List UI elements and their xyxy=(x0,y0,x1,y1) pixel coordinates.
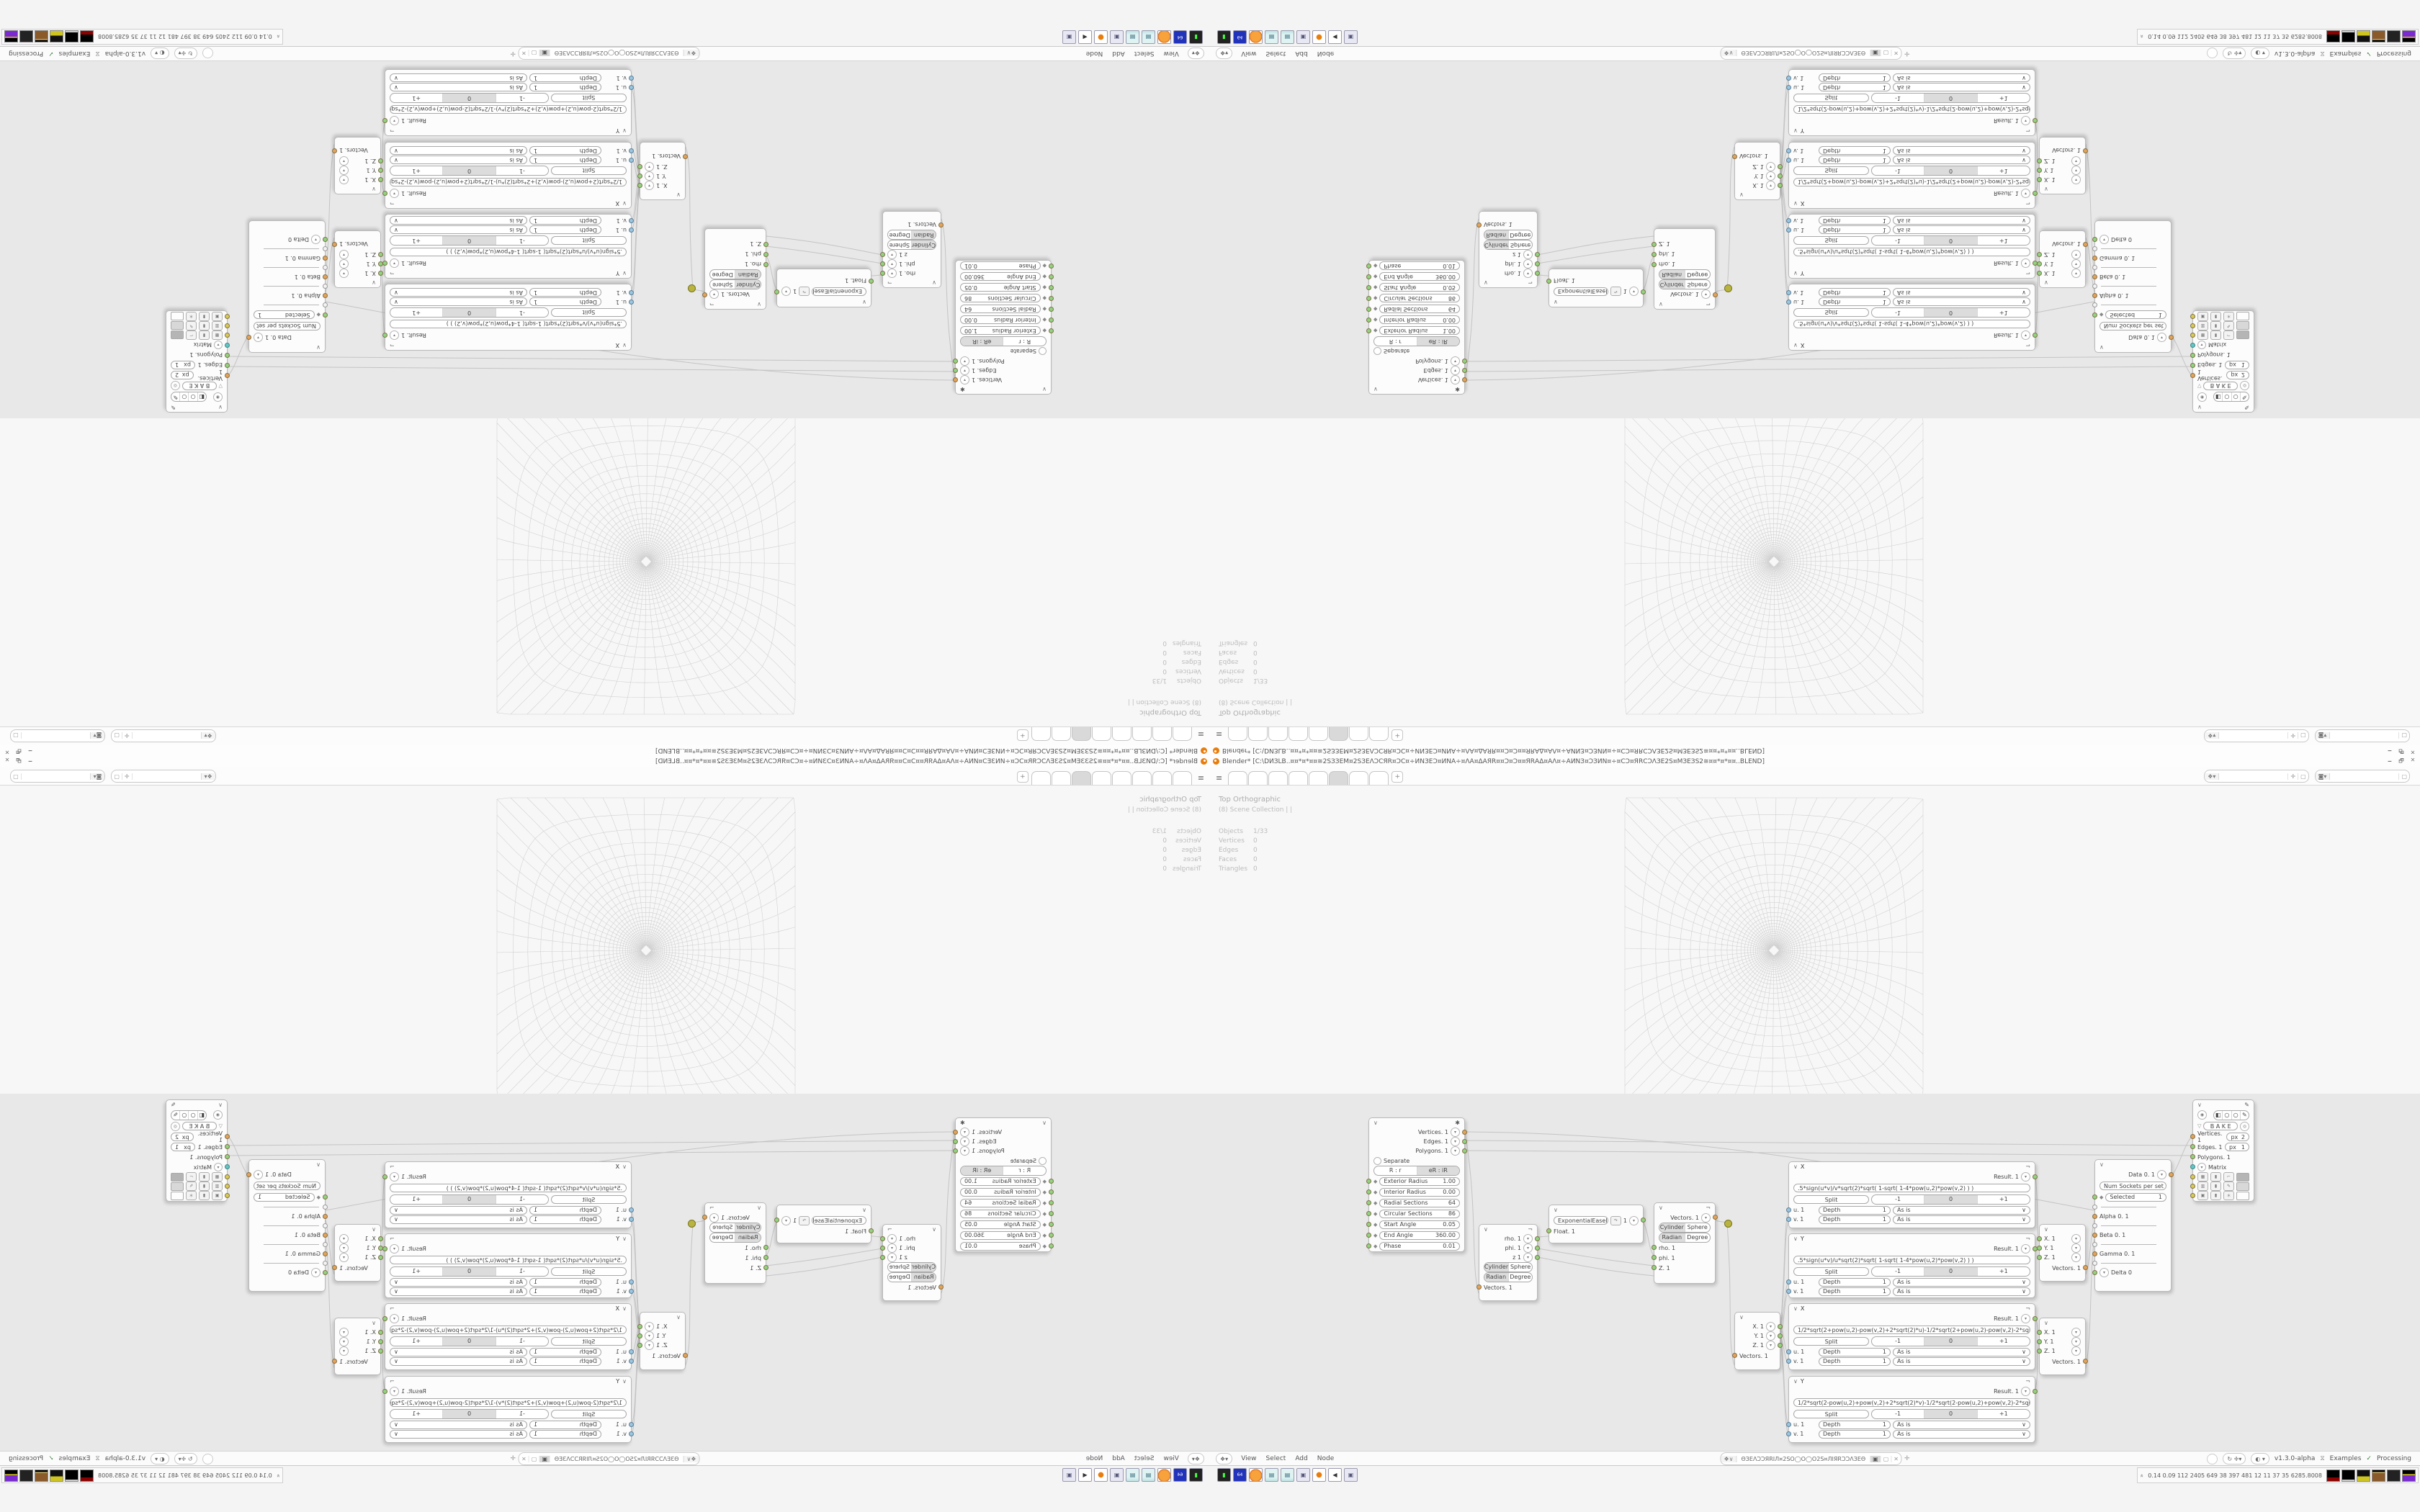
node-tree-selector[interactable]: ❖∨ ΘЗЕΛƆƆЯRIЛ¤2SO◯O◯O2S¤ЛIЯRƆƆΛЗЕΘ ▣ ▢ ✕ xyxy=(519,47,700,60)
socket-result-out[interactable] xyxy=(382,1389,387,1394)
node-easing[interactable]: ∨ ExponentialEaseIn ∨↷1▾ Float. 1 xyxy=(1549,1205,1644,1243)
angle-unit-toggle[interactable]: RadianDegree xyxy=(709,269,761,279)
node-vector-polar-output[interactable]: ∨¬ rho. 1▾ phi. 1▾ z 1▾ CylinderSphere R… xyxy=(1479,1224,1538,1301)
workspace-tab-active[interactable] xyxy=(1072,727,1091,741)
field-phase[interactable]: Phase0.01 xyxy=(960,262,1041,271)
node-vector-polar-input[interactable]: ∨¬ Vectors. 1▾ CylinderSphere RadianDegr… xyxy=(704,228,766,310)
reroute-node[interactable] xyxy=(1724,1220,1732,1228)
minimize-button[interactable]: 🗕 xyxy=(27,757,34,767)
node-vector-in-2[interactable]: ∨ X. 1▾ Y. 1▾ Z. 1▾ Vectors. 1 xyxy=(334,1318,381,1375)
node-vector-in-1[interactable]: ∨ X. 1▾ Y. 1▾ Z. 1▾ Vectors. 1 xyxy=(334,1224,381,1282)
pencil-icon[interactable]: ✎ xyxy=(171,1102,176,1108)
menu-hamburger-icon[interactable]: ≡ xyxy=(1198,773,1204,783)
formula-field[interactable]: .5*sign(u*v)/u*sqrt(2)*sqrt( 1-sqrt( 1-4… xyxy=(390,248,627,256)
socket-polygons-in[interactable] xyxy=(2190,353,2195,358)
blender-icon[interactable]: ● xyxy=(1312,30,1326,44)
split-button[interactable]: Split xyxy=(551,236,627,245)
collapse-icon[interactable]: » xyxy=(275,35,282,39)
processing-toggle[interactable]: Processing xyxy=(9,50,43,57)
socket-phi-in[interactable] xyxy=(763,1255,768,1260)
wrench-icon[interactable]: ¬ xyxy=(390,1164,395,1170)
num-sockets-field[interactable]: Num Sockets per set1 xyxy=(2099,1182,2166,1190)
wrap-toggle[interactable]: -10+1 xyxy=(1871,1266,2030,1277)
wrap-toggle[interactable]: -10+1 xyxy=(390,1409,549,1419)
coords-toggle[interactable]: CylinderSphere xyxy=(1484,1262,1533,1272)
window-icon[interactable]: ▣ xyxy=(1110,30,1124,44)
menu-hamburger-icon[interactable]: ≡ xyxy=(1198,729,1204,739)
socket-u-in[interactable] xyxy=(629,1207,634,1212)
socket-vectors-out[interactable] xyxy=(332,242,337,247)
node-input-switch[interactable]: ∨ Data 0. 1▾ Num Sockets per set1 ◆Selec… xyxy=(2094,220,2172,353)
viewlayer-selector[interactable]: ◙▾ ▢ xyxy=(10,770,105,783)
socket-alpha-in[interactable] xyxy=(2092,1214,2097,1219)
split-button[interactable]: Split xyxy=(1793,1267,1869,1276)
examples-menu[interactable]: Examples xyxy=(2330,1455,2362,1462)
socket-x-in[interactable] xyxy=(378,1330,383,1335)
socket-z-out[interactable] xyxy=(880,253,885,258)
node-ring-generator[interactable]: ∨✱ Vertices. 1▾ Edges. 1▾ Polygons. 1▾ S… xyxy=(1368,260,1465,395)
socket-result-out[interactable] xyxy=(2033,1389,2038,1394)
node-input-switch[interactable]: ∨ Data 0. 1▾ Num Sockets per set1 ◆Selec… xyxy=(248,220,326,353)
angle-unit-toggle[interactable]: RadianDegree xyxy=(1484,1272,1533,1282)
socket-edges-in[interactable] xyxy=(225,363,230,368)
menu-view[interactable]: View xyxy=(1163,50,1178,57)
pencil-icon[interactable]: ✎ xyxy=(2244,404,2249,410)
viewlayer-selector[interactable]: ◙▾ ▢ xyxy=(2315,770,2410,783)
gear-icon[interactable]: ✱ xyxy=(1455,386,1460,392)
workspace-tab[interactable] xyxy=(1112,771,1131,785)
window-icon[interactable]: ▣ xyxy=(1296,1468,1310,1482)
socket-vertices-out[interactable] xyxy=(953,378,958,383)
scene-selector[interactable]: ❖▾ ✛ ▢ xyxy=(2204,770,2308,783)
workspace-tab[interactable] xyxy=(1132,771,1152,785)
socket-u-in[interactable] xyxy=(1786,1349,1791,1354)
add-workspace-button[interactable]: + xyxy=(1391,771,1403,783)
processing-toggle[interactable]: Processing xyxy=(2377,1455,2411,1462)
node-input-switch[interactable]: ∨ Data 0. 1▾ Num Sockets per set1 ◆Selec… xyxy=(248,1159,326,1292)
poly-color-swatch[interactable] xyxy=(171,1192,184,1200)
socket-edges-out[interactable] xyxy=(953,1139,958,1144)
wrap-toggle[interactable]: -10+1 xyxy=(1871,235,2030,246)
wrap-toggle[interactable]: -10+1 xyxy=(1871,1336,2030,1346)
easing-function-dropdown[interactable]: ExponentialEaseIn ∨ xyxy=(812,287,866,296)
socket-x-out[interactable] xyxy=(637,184,642,189)
node-editor[interactable]: ∨✱ Vertices. 1▾ Edges. 1▾ Polygons. 1▾ S… xyxy=(0,1094,1210,1451)
node-formula-y2[interactable]: ∨Y¬ Result. 1▾ 1/2*sqrt(2-pow(u,2)+pow(v… xyxy=(385,1376,632,1443)
socket-x-in[interactable] xyxy=(2037,1236,2042,1241)
notepad-icon[interactable]: ▤ xyxy=(1126,1468,1139,1482)
field-radial-sections[interactable]: Radial Sections64 xyxy=(1379,1199,1460,1207)
socket-z-in[interactable] xyxy=(2037,159,2042,164)
copy-icon[interactable]: ▢ xyxy=(1881,50,1891,57)
pin-icon[interactable]: ✛ xyxy=(2287,733,2298,739)
socket-vectors-out[interactable] xyxy=(332,1265,337,1270)
split-button[interactable]: Split xyxy=(1793,166,1869,175)
draw-mode-icons[interactable]: ◧○○✎ xyxy=(171,392,207,402)
copy-icon[interactable]: ▢ xyxy=(11,733,22,739)
formula-field[interactable]: 1/2*sqrt(2-pow(u,2)+pow(v,2)+2*sqrt(2)*v… xyxy=(390,1398,627,1407)
coords-toggle[interactable]: CylinderSphere xyxy=(887,240,936,250)
maximize-button[interactable]: 🗗 xyxy=(2398,757,2405,767)
viewport-3d[interactable]: Top Orthographic (8) Scene Collection | … xyxy=(0,786,1210,1108)
viewport-3d[interactable]: Top Orthographic (8) Scene Collection | … xyxy=(1210,404,2420,726)
copy-icon[interactable]: ▢ xyxy=(2298,733,2308,739)
socket-result-out[interactable] xyxy=(382,261,387,266)
socket-empty[interactable] xyxy=(2092,1205,2097,1210)
menu-hamburger-icon[interactable]: ≡ xyxy=(1216,729,1222,739)
node-vector-in-2[interactable]: ∨ X. 1▾ Y. 1▾ Z. 1▾ Vectors. 1 xyxy=(334,137,381,194)
menu-add[interactable]: Add xyxy=(1295,1455,1307,1462)
socket-empty[interactable] xyxy=(323,1205,328,1210)
field-interior-radius[interactable]: Interior Radius0.00 xyxy=(960,316,1041,325)
socket-edge-color[interactable] xyxy=(2190,324,2195,329)
wrench-icon[interactable]: ¬ xyxy=(390,342,395,348)
firefox-icon[interactable] xyxy=(1249,30,1263,44)
menu-select[interactable]: Select xyxy=(1266,50,1286,57)
socket-z-out[interactable] xyxy=(637,1343,642,1348)
socket-empty[interactable] xyxy=(2092,266,2097,271)
field-end-angle[interactable]: End Angle360.00 xyxy=(960,273,1041,282)
edge-width-field[interactable]: px1 xyxy=(171,361,195,369)
close-button[interactable]: ✕ xyxy=(2409,746,2416,756)
socket-z-in[interactable] xyxy=(1652,242,1657,247)
node-tree-selector[interactable]: ❖∨ ΘЗЕΛƆƆЯRIЛ¤2SO◯O◯O2S¤ЛIЯRƆƆΛЗЕΘ ▣ ▢ ✕ xyxy=(519,1452,700,1465)
socket-edge-color[interactable] xyxy=(225,1184,230,1189)
draw-mode-icons[interactable]: ◧○○✎ xyxy=(2213,1110,2249,1120)
copy-icon[interactable]: ▢ xyxy=(529,50,540,57)
wrap-toggle[interactable]: -10+1 xyxy=(1871,1194,2030,1205)
socket-vectors-in[interactable] xyxy=(683,1353,688,1358)
socket-rho-in[interactable] xyxy=(763,262,768,267)
display-toggle-icon[interactable]: ◉ xyxy=(213,392,223,402)
formula-field[interactable]: .5*sign(u*v)/v*sqrt(2)*sqrt( 1-sqrt( 1-4… xyxy=(1793,320,2030,328)
viewport-3d[interactable]: Top Orthographic (8) Scene Collection | … xyxy=(0,404,1210,726)
socket-z-in[interactable] xyxy=(2037,1349,2042,1354)
point-size-field[interactable]: px2 xyxy=(2226,1133,2249,1141)
workspace-tab[interactable] xyxy=(1268,771,1288,785)
wrap-toggle[interactable]: -10+1 xyxy=(390,1266,549,1277)
menu-view[interactable]: View xyxy=(1241,1455,1256,1462)
formula-field[interactable]: .5*sign(u*v)/u*sqrt(2)*sqrt( 1-sqrt( 1-4… xyxy=(1793,1256,2030,1264)
formula-field[interactable]: 1/2*sqrt(2-pow(u,2)+pow(v,2)+2*sqrt(2)*v… xyxy=(390,105,627,114)
socket-alpha-in[interactable] xyxy=(323,1214,328,1219)
socket-poly-color[interactable] xyxy=(225,1193,230,1198)
socket-phi-out[interactable] xyxy=(1535,1246,1540,1251)
bake-options-icon[interactable]: ▽ xyxy=(219,1123,223,1129)
separate-checkbox[interactable] xyxy=(1373,1157,1381,1165)
field-interior-radius[interactable]: Interior Radius0.00 xyxy=(960,1188,1041,1197)
wrench-icon[interactable]: ¬ xyxy=(2025,1305,2030,1312)
copy-icon[interactable]: ▢ xyxy=(112,773,122,780)
workspace-tab[interactable] xyxy=(1228,727,1247,741)
socket-u-in[interactable] xyxy=(629,1279,634,1284)
vertex-color-swatch[interactable] xyxy=(171,331,184,340)
socket-easing-out[interactable] xyxy=(1641,1218,1646,1223)
maximize-button[interactable]: 🗗 xyxy=(15,746,22,756)
light-icon[interactable]: ◎ xyxy=(171,1122,180,1131)
node-ring-generator[interactable]: ∨✱ Vertices. 1▾ Edges. 1▾ Polygons. 1▾ S… xyxy=(955,260,1052,395)
socket-data-out[interactable] xyxy=(246,1172,251,1177)
socket-vectors-in[interactable] xyxy=(1476,1284,1482,1290)
vertex-color-swatch[interactable] xyxy=(171,1173,184,1182)
socket-z-in[interactable] xyxy=(2037,1255,2042,1260)
field-start-angle[interactable]: Start Angle0.05 xyxy=(960,284,1041,292)
menu-node[interactable]: Node xyxy=(1317,50,1335,57)
menu-node[interactable]: Node xyxy=(1086,1455,1103,1462)
ring-mode-toggle[interactable]: R : reR : iR xyxy=(1373,1166,1460,1176)
socket-v-in[interactable] xyxy=(1786,219,1791,224)
socket-y-in[interactable] xyxy=(378,1246,383,1251)
workspace-tab[interactable] xyxy=(1309,771,1328,785)
selected-field[interactable]: Selected1 xyxy=(2105,1193,2166,1202)
node-vector-in-2[interactable]: ∨ X. 1▾ Y. 1▾ Z. 1▾ Vectors. 1 xyxy=(2039,1318,2086,1375)
socket-u-in[interactable] xyxy=(1786,158,1791,163)
socket-y-out[interactable] xyxy=(1778,1333,1783,1338)
poly-color-swatch[interactable] xyxy=(171,312,184,321)
easing-curve-icon[interactable]: ↷ xyxy=(1610,287,1621,297)
edge-width-field[interactable]: px1 xyxy=(2225,361,2249,369)
workspace-tab[interactable] xyxy=(1289,727,1308,741)
formula-field[interactable]: 1/2*sqrt(2-pow(u,2)+pow(v,2)+2*sqrt(2)*v… xyxy=(1793,105,2030,114)
menu-select[interactable]: Select xyxy=(1134,1455,1155,1462)
collapse-icon[interactable]: » xyxy=(2138,1474,2145,1477)
socket-easing-out[interactable] xyxy=(774,289,779,294)
value-options-icon[interactable]: ◆ xyxy=(1373,328,1377,334)
display-toggle-icon[interactable]: ◉ xyxy=(2197,1110,2207,1120)
field-end-angle[interactable]: End Angle360.00 xyxy=(960,1231,1041,1240)
node-vector-polar-input[interactable]: ∨¬ Vectors. 1▾ CylinderSphere RadianDegr… xyxy=(1654,228,1716,310)
socket-vertices-in[interactable] xyxy=(225,373,230,378)
menu-select[interactable]: Select xyxy=(1266,1455,1286,1462)
scene-name-well[interactable] xyxy=(2219,770,2287,782)
node-tree-selector[interactable]: ❖∨ ΘЗЕΛƆƆЯRIЛ¤2SO◯O◯O2S¤ЛIЯRƆƆΛЗЕΘ ▣ ▢ ✕ xyxy=(1720,47,1901,60)
wrench-icon[interactable]: ¬ xyxy=(390,270,395,276)
field-circular-sections[interactable]: Circular Sections86 xyxy=(1379,294,1460,303)
shading-icon[interactable]: ◐ ▾ xyxy=(2251,48,2269,59)
socket-rho-out[interactable] xyxy=(880,1236,885,1241)
field-circular-sections[interactable]: Circular Sections86 xyxy=(1379,1210,1460,1218)
field-interior-radius[interactable]: Interior Radius0.00 xyxy=(1379,316,1460,325)
pin-icon[interactable]: ✛ xyxy=(122,773,133,780)
formula-field[interactable]: .5*sign(u*v)/v*sqrt(2)*sqrt( 1-sqrt( 1-4… xyxy=(390,1184,627,1192)
blender-icon[interactable]: ● xyxy=(1312,1468,1326,1482)
examples-menu[interactable]: Examples xyxy=(2330,50,2362,57)
node-formula-x1[interactable]: ∨X¬ Result. 1▾ .5*sign(u*v)/v*sqrt(2)*sq… xyxy=(1788,284,2035,351)
easing-function-dropdown[interactable]: ExponentialEaseIn ∨ xyxy=(1554,1216,1608,1225)
wrench-icon[interactable]: ¬ xyxy=(390,1378,395,1385)
copy-icon[interactable]: ▢ xyxy=(2298,773,2308,780)
socket-vectors-in[interactable] xyxy=(1732,1353,1737,1358)
copy-icon[interactable]: ▢ xyxy=(1881,1456,1891,1462)
maximize-button[interactable]: 🗗 xyxy=(15,757,22,767)
bake-options-icon[interactable]: ▽ xyxy=(2197,1123,2201,1129)
socket-x-in[interactable] xyxy=(2037,271,2042,276)
num-sockets-field[interactable]: Num Sockets per set1 xyxy=(2099,322,2166,330)
socket-result-out[interactable] xyxy=(382,192,387,197)
socket-vert-color[interactable] xyxy=(2190,1174,2195,1179)
socket-z-in[interactable] xyxy=(2037,253,2042,258)
workspace-tab-active[interactable] xyxy=(1329,771,1348,785)
draw-mode-icons[interactable]: ◧○○✎ xyxy=(171,1110,207,1120)
split-button[interactable]: Split xyxy=(1793,1410,1869,1418)
wrap-toggle[interactable]: -10+1 xyxy=(1871,1409,2030,1419)
wrench-icon[interactable]: ¬ xyxy=(887,1226,892,1233)
floppy-64-icon[interactable]: 64 xyxy=(1233,30,1247,44)
node-viewer-draw[interactable]: ∨✎ ◉◧○○✎ ▽B A K E◎ Vertices. 1px2 Edges.… xyxy=(166,310,228,413)
socket-v-in[interactable] xyxy=(1786,1359,1791,1364)
node-vector-in-1[interactable]: ∨ X. 1▾ Y. 1▾ Z. 1▾ Vectors. 1 xyxy=(334,230,381,288)
window-icon[interactable]: ▣ xyxy=(1296,30,1310,44)
ring-mode-toggle[interactable]: R : reR : iR xyxy=(960,336,1047,346)
reroute-node[interactable] xyxy=(1724,284,1732,292)
node-formula-y2[interactable]: ∨Y¬ Result. 1▾ 1/2*sqrt(2-pow(u,2)+pow(v… xyxy=(1788,1376,2035,1443)
socket-float-in[interactable] xyxy=(1546,1228,1551,1233)
socket-z-in[interactable] xyxy=(378,1349,383,1354)
socket-vectors-out[interactable] xyxy=(2083,1265,2088,1270)
workspace-tab[interactable] xyxy=(1112,727,1131,741)
socket-z-out[interactable] xyxy=(637,165,642,170)
split-button[interactable]: Split xyxy=(551,1267,627,1276)
workspace-tab-active[interactable] xyxy=(1072,771,1091,785)
field-radial-sections[interactable]: Radial Sections64 xyxy=(960,1199,1041,1207)
socket-polygons-out[interactable] xyxy=(953,359,958,364)
socket-phi-out[interactable] xyxy=(880,262,885,267)
split-button[interactable]: Split xyxy=(1793,94,1869,102)
blank-circle-icon[interactable] xyxy=(2207,1454,2218,1464)
value-options-icon[interactable]: ◆ xyxy=(1043,1179,1047,1184)
shading-icon[interactable]: ◐ ▾ xyxy=(151,1453,169,1464)
socket-float-in[interactable] xyxy=(1546,279,1551,284)
pin-icon[interactable]: ✛ xyxy=(1904,1455,1910,1462)
angle-unit-toggle[interactable]: RadianDegree xyxy=(887,1272,936,1282)
socket-vectors-in[interactable] xyxy=(683,154,688,159)
coords-toggle[interactable]: CylinderSphere xyxy=(1659,1223,1711,1233)
floppy-64-icon[interactable]: 64 xyxy=(1233,1468,1247,1482)
blank-circle-icon[interactable] xyxy=(202,48,213,59)
workspace-tab[interactable] xyxy=(1052,771,1071,785)
node-vector-in-1[interactable]: ∨ X. 1▾ Y. 1▾ Z. 1▾ Vectors. 1 xyxy=(2039,230,2086,288)
audio-icon[interactable]: ◀ xyxy=(1078,1468,1092,1482)
node-vector-polar-input[interactable]: ∨¬ Vectors. 1▾ CylinderSphere RadianDegr… xyxy=(704,1202,766,1284)
socket-edges-in[interactable] xyxy=(2190,363,2195,368)
field-exterior-radius[interactable]: Exterior Radius1.00 xyxy=(960,1177,1041,1186)
socket-empty[interactable] xyxy=(2092,303,2097,308)
field-interior-radius[interactable]: Interior Radius0.00 xyxy=(1379,1188,1460,1197)
socket-poly-color[interactable] xyxy=(2190,315,2195,320)
workspace-tab[interactable] xyxy=(1152,771,1172,785)
copy-icon[interactable]: ▢ xyxy=(2398,773,2409,780)
socket-gamma-in[interactable] xyxy=(2092,1251,2097,1256)
node-formula-x2[interactable]: ∨X¬ Result. 1▾ 1/2*sqrt(2+pow(u,2)-pow(v… xyxy=(1788,1303,2035,1370)
viewlayer-selector[interactable]: ◙▾ ▢ xyxy=(10,729,105,742)
display-toggle-icon[interactable]: ◉ xyxy=(213,1110,223,1120)
socket-matrix-in[interactable] xyxy=(2190,1164,2195,1169)
coords-toggle[interactable]: CylinderSphere xyxy=(709,279,761,289)
socket-u-in[interactable] xyxy=(1786,300,1791,305)
gear-icon[interactable]: ✱ xyxy=(1455,1120,1460,1126)
socket-rho-in[interactable] xyxy=(1652,262,1657,267)
update-group-icons[interactable]: ↻ ✛▾ xyxy=(174,1453,197,1464)
socket-vectors-out[interactable] xyxy=(332,1359,337,1364)
field-phase[interactable]: Phase0.01 xyxy=(1379,1242,1460,1251)
value-options-icon[interactable]: ◆ xyxy=(1043,328,1047,334)
node-ring-generator[interactable]: ∨✱ Vertices. 1▾ Edges. 1▾ Polygons. 1▾ S… xyxy=(1368,1117,1465,1252)
node-viewer-draw[interactable]: ∨✎ ◉◧○○✎ ▽B A K E◎ Vertices. 1px2 Edges.… xyxy=(166,1099,228,1202)
node-viewer-draw[interactable]: ∨✎ ◉◧○○✎ ▽B A K E◎ Vertices. 1px2 Edges.… xyxy=(2192,1099,2254,1202)
socket-y-out[interactable] xyxy=(637,174,642,179)
workspace-tab[interactable] xyxy=(1289,771,1308,785)
viewlayer-selector[interactable]: ◙▾ ▢ xyxy=(2315,729,2410,742)
socket-rho-in[interactable] xyxy=(763,1245,768,1250)
bake-button[interactable]: B A K E xyxy=(182,382,217,390)
node-formula-y1[interactable]: ∨Y¬ Result. 1▾ .5*sign(u*v)/u*sqrt(2)*sq… xyxy=(385,214,632,279)
wrench-icon[interactable]: ¬ xyxy=(390,127,395,134)
node-tree-name[interactable]: ΘЗЕΛƆƆЯRIЛ¤2SO◯O◯O2S¤ЛIЯRƆƆΛЗЕΘ xyxy=(550,50,684,57)
vertex-color-swatch[interactable] xyxy=(2236,1173,2249,1182)
pencil-icon[interactable]: ✎ xyxy=(171,404,176,410)
window-icon[interactable]: ▣ xyxy=(1344,1468,1358,1482)
wrap-toggle[interactable]: -10+1 xyxy=(1871,307,2030,318)
menu-hamburger-icon[interactable]: ≡ xyxy=(1216,773,1222,783)
socket-gamma-in[interactable] xyxy=(323,1251,328,1256)
node-input-switch[interactable]: ∨ Data 0. 1▾ Num Sockets per set1 ◆Selec… xyxy=(2094,1159,2172,1292)
angle-unit-toggle[interactable]: RadianDegree xyxy=(709,1233,761,1243)
wrench-icon[interactable]: ¬ xyxy=(390,1305,395,1312)
blender-icon[interactable]: ● xyxy=(1094,30,1108,44)
pin-icon[interactable]: ✛ xyxy=(2287,773,2298,780)
examples-menu[interactable]: Examples xyxy=(59,1455,91,1462)
menu-view[interactable]: View xyxy=(1163,1455,1178,1462)
socket-matrix-in[interactable] xyxy=(225,343,230,348)
scene-name-well[interactable] xyxy=(2219,730,2287,742)
socket-float-in[interactable] xyxy=(869,1228,874,1233)
point-size-field[interactable]: px2 xyxy=(171,371,194,379)
node-formula-y1[interactable]: ∨Y¬ Result. 1▾ .5*sign(u*v)/u*sqrt(2)*sq… xyxy=(1788,214,2035,279)
field-start-angle[interactable]: Start Angle0.05 xyxy=(1379,1220,1460,1229)
viewlayer-name-well[interactable] xyxy=(2330,770,2398,782)
socket-z-in[interactable] xyxy=(763,242,768,247)
add-workspace-button[interactable]: + xyxy=(1391,729,1403,741)
wrench-icon[interactable]: ¬ xyxy=(2025,342,2030,348)
coords-toggle[interactable]: CylinderSphere xyxy=(887,1262,936,1272)
floppy-64-icon[interactable]: 64 xyxy=(1173,1468,1187,1482)
socket-edges-in[interactable] xyxy=(225,1144,230,1149)
socket-phi-in[interactable] xyxy=(763,252,768,257)
field-start-angle[interactable]: Start Angle0.05 xyxy=(960,1220,1041,1229)
close-icon[interactable]: ✕ xyxy=(519,1456,529,1462)
easing-function-dropdown[interactable]: ExponentialEaseIn ∨ xyxy=(812,1216,866,1225)
node-ring-generator[interactable]: ∨✱ Vertices. 1▾ Edges. 1▾ Polygons. 1▾ S… xyxy=(955,1117,1052,1252)
socket-empty[interactable] xyxy=(2092,1242,2097,1247)
easing-curve-icon[interactable]: ↷ xyxy=(1610,1216,1621,1225)
socket-u-in[interactable] xyxy=(629,1349,634,1354)
vertex-color-swatch[interactable] xyxy=(2236,331,2249,340)
node-editor[interactable]: ∨✱ Vertices. 1▾ Edges. 1▾ Polygons. 1▾ S… xyxy=(0,61,1210,418)
socket-edge-color[interactable] xyxy=(2190,1184,2195,1189)
socket-vectors-in[interactable] xyxy=(1476,222,1482,228)
workspace-tab-active[interactable] xyxy=(1329,727,1348,741)
socket-data-out[interactable] xyxy=(246,336,251,341)
separate-checkbox[interactable] xyxy=(1039,1157,1047,1165)
audio-icon[interactable]: ◀ xyxy=(1328,30,1342,44)
easing-curve-icon[interactable]: ↷ xyxy=(799,287,810,297)
shield-icon[interactable]: ▣ xyxy=(1870,50,1881,57)
processing-toggle[interactable]: Processing xyxy=(2377,50,2411,57)
bake-button[interactable]: B A K E xyxy=(2203,1122,2238,1130)
viewlayer-name-well[interactable] xyxy=(22,730,90,742)
window-icon[interactable]: ▣ xyxy=(1062,30,1076,44)
scene-selector[interactable]: ❖▾ ✛ ▢ xyxy=(111,729,215,742)
